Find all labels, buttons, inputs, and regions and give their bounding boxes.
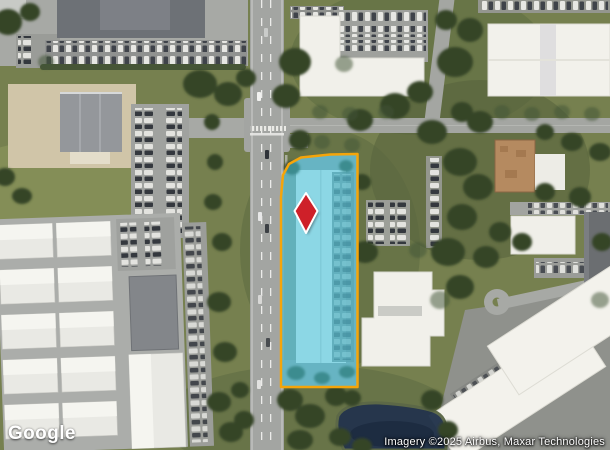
imagery-attribution: Imagery ©2025 Airbus, Maxar Technologies [384,436,605,448]
satellite-imagery [0,0,610,450]
map-canvas[interactable]: Google Imagery ©2025 Airbus, Maxar Techn… [0,0,610,450]
crosswalk [250,126,286,131]
selected-parcel-overlay[interactable] [281,154,358,387]
google-logo[interactable]: Google [8,423,76,445]
